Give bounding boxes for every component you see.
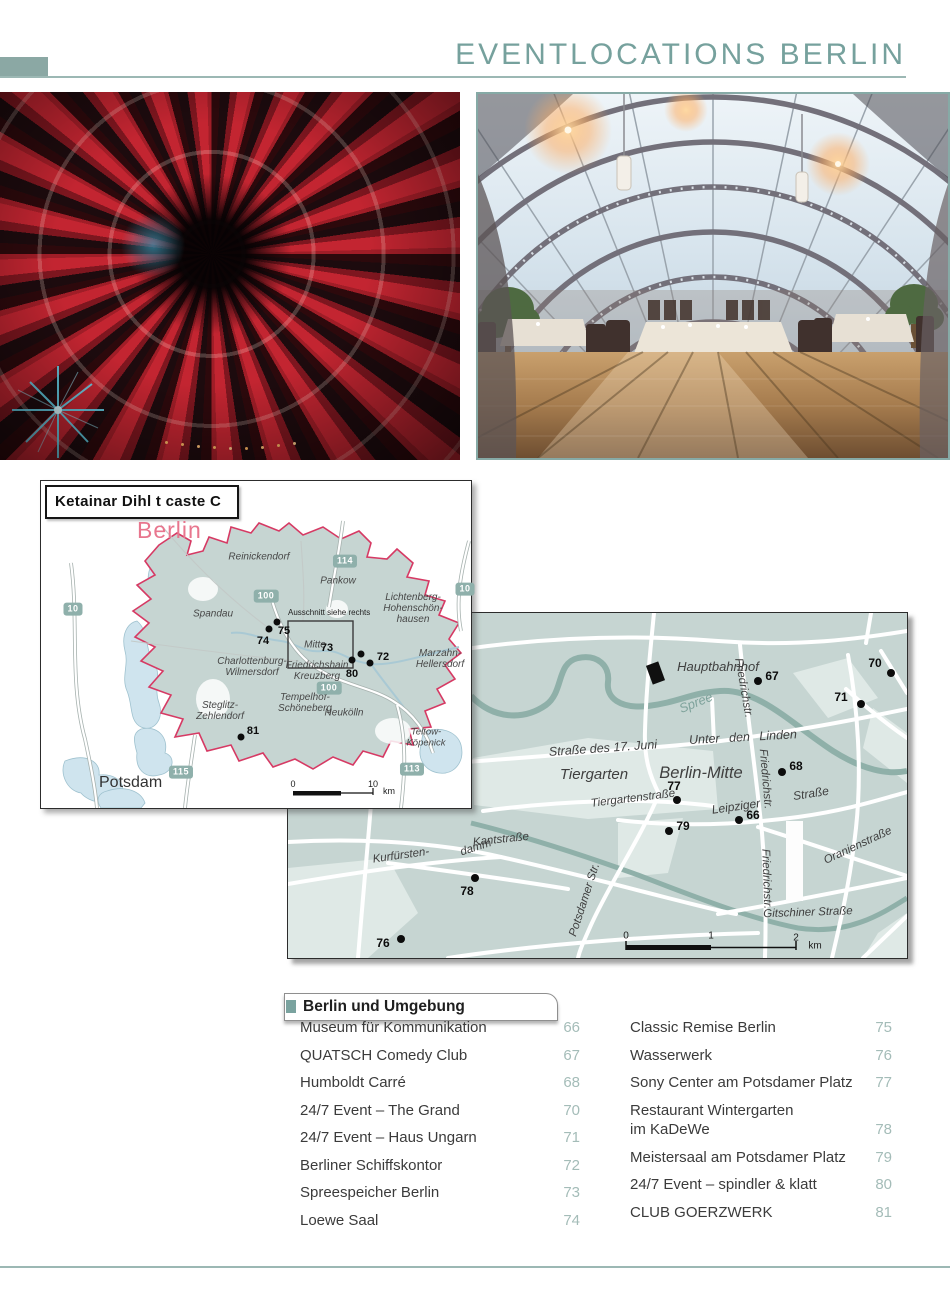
blue-light-glow: [118, 210, 188, 280]
directory-entry-page-number: 81: [875, 1203, 892, 1223]
directory-entry-label: 24/7 Event – The Grand: [300, 1101, 460, 1121]
directory-entry-page-number: 70: [563, 1101, 580, 1121]
road-badge-a10-east: 10: [455, 583, 474, 596]
detail-scale-unit: km: [808, 941, 821, 952]
road-badge-a100-north: 100: [254, 590, 279, 603]
directory-entry[interactable]: 24/7 Event – The Grand70: [300, 1097, 580, 1125]
directory-entry-page-number: 76: [875, 1046, 892, 1066]
road-badge-a114: 114: [333, 555, 357, 568]
directory-entry-label: Berliner Schiffskontor: [300, 1156, 442, 1176]
road-badge-a100-south: 100: [317, 682, 342, 695]
map-marker-81: 81: [247, 725, 259, 737]
directory-header-marker: [286, 1000, 296, 1013]
directory-entry-page-number: 77: [875, 1073, 892, 1093]
map-marker-dot-71: [857, 700, 865, 708]
road-badge-a10-west: 10: [63, 603, 82, 616]
chapter-marker-block: [0, 57, 48, 77]
map-marker-dot-72: [367, 660, 374, 667]
directory-entry[interactable]: Berliner Schiffskontor72: [300, 1152, 580, 1180]
directory-entry-page-number: 66: [563, 1018, 580, 1038]
map-marker-dot-73: [349, 657, 356, 664]
inset-note: Ausschnitt siehe rechts: [288, 608, 370, 617]
footer-rule: [0, 1266, 950, 1268]
directory-entry-page-number: 75: [875, 1018, 892, 1038]
white-map-strip: [786, 821, 803, 901]
map-marker-77: 77: [667, 779, 680, 793]
directory-entry[interactable]: Museum für Kommunikation66: [300, 1014, 580, 1042]
directory-entry-label: Meistersaal am Potsdamer Platz: [630, 1148, 846, 1168]
directory-entry[interactable]: Loewe Saal74: [300, 1207, 580, 1235]
map-marker-71: 71: [834, 690, 847, 704]
map-marker-dot-74: [266, 626, 273, 633]
road-badge-a113: 113: [400, 763, 424, 776]
directory-entry-label: Classic Remise Berlin: [630, 1018, 776, 1038]
header-rule: [0, 76, 906, 78]
directory-entry-label: Loewe Saal: [300, 1211, 378, 1231]
map-marker-dot-76: [397, 935, 405, 943]
directory-entry-label: 24/7 Event – spindler & klatt: [630, 1175, 817, 1195]
map-marker-75: 75: [278, 625, 290, 637]
overview-scale-unit: km: [383, 786, 395, 796]
map-marker-dot-68: [778, 768, 786, 776]
map-marker-70: 70: [868, 656, 881, 670]
map-marker-78: 78: [460, 884, 473, 898]
map-marker-74: 74: [257, 635, 269, 647]
directory-entry-label: Restaurant Wintergartenim KaDeWe: [630, 1101, 793, 1140]
directory-entry[interactable]: Meistersaal am Potsdamer Platz79: [630, 1144, 892, 1172]
directory-entry-page-number: 80: [875, 1175, 892, 1195]
directory-left-column: Museum für Kommunikation66QUATSCH Comedy…: [300, 1014, 580, 1234]
directory-entry[interactable]: CLUB GOERZWERK81: [630, 1199, 892, 1227]
directory-entry-page-number: 79: [875, 1148, 892, 1168]
city-label-potsdam: Potsdam: [99, 774, 162, 792]
brochure-page: EVENTLOCATIONS BERLIN: [0, 0, 950, 1295]
map-marker-66: 66: [746, 808, 759, 822]
directory-entry-label: 24/7 Event – Haus Ungarn: [300, 1128, 477, 1148]
page-title: EVENTLOCATIONS BERLIN: [455, 38, 906, 72]
overview-map-berlin: Ketainar Dihl t caste C Berlin Potsdam A…: [40, 480, 472, 809]
map-marker-68: 68: [789, 759, 802, 773]
directory-entry[interactable]: QUATSCH Comedy Club67: [300, 1042, 580, 1070]
map-marker-dot-77: [673, 796, 681, 804]
photo-restaurant-wintergarten: [476, 92, 950, 460]
photo-sony-center-roof: [0, 92, 460, 460]
detail-scale-0: 0: [623, 931, 629, 942]
directory-entry[interactable]: Sony Center am Potsdamer Platz77: [630, 1069, 892, 1097]
blue-starburst: [8, 360, 118, 460]
detail-scale-2: 2: [793, 933, 799, 944]
map-marker-dot-81: [238, 734, 245, 741]
map-marker-76: 76: [376, 936, 389, 950]
map-marker-72: 72: [377, 651, 389, 663]
directory-entry-page-number: 78: [875, 1120, 892, 1140]
map-marker-dot-79: [665, 827, 673, 835]
directory-entry[interactable]: Spreespeicher Berlin73: [300, 1179, 580, 1207]
wintergarten-illustration: [478, 94, 948, 458]
map-marker-dot-78: [471, 874, 479, 882]
map-marker-dot-80: [358, 651, 365, 658]
directory-entry-page-number: 67: [563, 1046, 580, 1066]
road-badge-a115: 115: [169, 766, 193, 779]
directory-entry[interactable]: Restaurant Wintergartenim KaDeWe78: [630, 1097, 892, 1144]
directory-entry[interactable]: 24/7 Event – spindler & klatt80: [630, 1171, 892, 1199]
directory-entry-label: CLUB GOERZWERK: [630, 1203, 773, 1223]
directory-entry[interactable]: Wasserwerk76: [630, 1042, 892, 1070]
directory-entry-label: Wasserwerk: [630, 1046, 712, 1066]
map-marker-73: 73: [321, 642, 333, 654]
directory-entry-page-number: 71: [563, 1128, 580, 1148]
directory-entry-page-number: 72: [563, 1156, 580, 1176]
map-credit-box: Ketainar Dihl t caste C: [45, 485, 239, 519]
directory-entry[interactable]: Classic Remise Berlin75: [630, 1014, 892, 1042]
map-marker-dot-66: [735, 816, 743, 824]
overview-scale-10: 10: [368, 779, 378, 789]
map-marker-dot-67: [754, 677, 762, 685]
map-marker-dot-70: [887, 669, 895, 677]
directory-right-column: Classic Remise Berlin75Wasserwerk76Sony …: [630, 1014, 892, 1226]
ceiling-lights-row: [165, 441, 168, 444]
city-label-berlin: Berlin: [137, 517, 202, 544]
directory-entry-page-number: 68: [563, 1073, 580, 1093]
overview-scale-0: 0: [290, 779, 295, 789]
map-marker-67: 67: [765, 669, 778, 683]
directory-entry-label: Sony Center am Potsdamer Platz: [630, 1073, 853, 1093]
map-marker-80: 80: [346, 668, 358, 680]
directory-entry[interactable]: 24/7 Event – Haus Ungarn71: [300, 1124, 580, 1152]
directory-entry-label: Museum für Kommunikation: [300, 1018, 487, 1038]
directory-entry-label: QUATSCH Comedy Club: [300, 1046, 467, 1066]
directory-entry-label: Spreespeicher Berlin: [300, 1183, 439, 1203]
directory-entry-label: Humboldt Carré: [300, 1073, 406, 1093]
detail-scale-1: 1: [708, 931, 714, 942]
map-marker-79: 79: [676, 819, 689, 833]
directory-entry[interactable]: Humboldt Carré68: [300, 1069, 580, 1097]
directory-entry-page-number: 73: [563, 1183, 580, 1203]
directory-entry-page-number: 74: [563, 1211, 580, 1231]
